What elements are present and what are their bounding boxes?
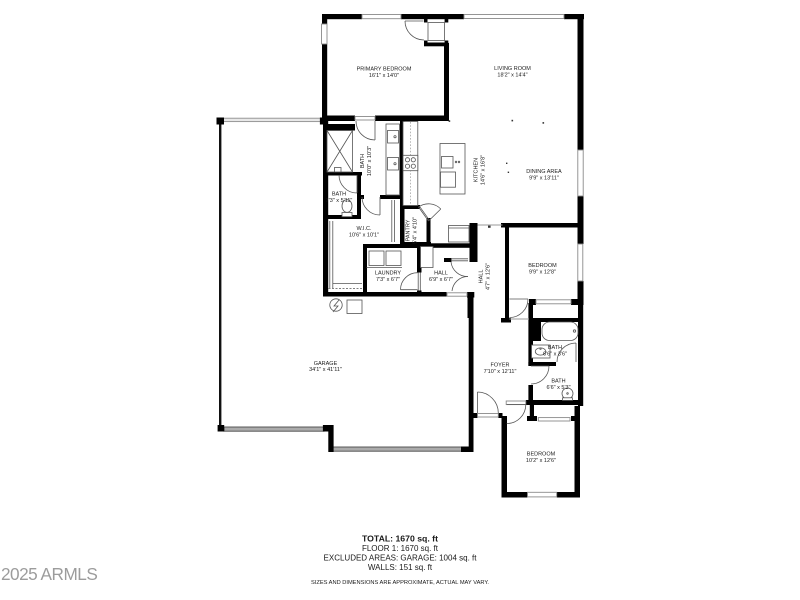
svg-text:14'6" x 16'8": 14'6" x 16'8" (481, 155, 487, 185)
svg-text:BEDROOM: BEDROOM (528, 263, 557, 269)
svg-text:10'6" x 10'1": 10'6" x 10'1" (349, 233, 379, 239)
svg-text:5'4" x 4'10": 5'4" x 4'10" (413, 217, 419, 244)
svg-text:HALL: HALL (479, 270, 485, 284)
svg-text:BATH: BATH (548, 345, 562, 351)
svg-text:PRIMARY BEDROOM: PRIMARY BEDROOM (357, 67, 412, 73)
svg-text:18'2" x 14'4": 18'2" x 14'4" (497, 73, 527, 79)
svg-text:BATH: BATH (360, 154, 366, 168)
svg-text:DINING AREA: DINING AREA (526, 169, 562, 175)
svg-text:LAUNDRY: LAUNDRY (375, 271, 402, 277)
svg-text:6'6" x 3'6": 6'6" x 3'6" (543, 352, 567, 358)
svg-text:6'6" x 5'3": 6'6" x 5'3" (546, 385, 570, 391)
svg-text:7'3" x 5'11": 7'3" x 5'11" (326, 198, 353, 204)
svg-text:TOTAL: 1670 sq. ft: TOTAL: 1670 sq. ft (362, 534, 438, 544)
svg-text:10'2" x 12'6": 10'2" x 12'6" (526, 458, 556, 464)
svg-text:FOYER: FOYER (491, 363, 510, 369)
svg-text:34'1" x 41'11": 34'1" x 41'11" (309, 367, 342, 373)
svg-text:WALLS: 151 sq. ft: WALLS: 151 sq. ft (368, 563, 433, 572)
svg-text:LIVING ROOM: LIVING ROOM (494, 66, 531, 72)
svg-text:KITCHEN: KITCHEN (474, 158, 480, 182)
svg-text:HALL: HALL (434, 271, 448, 277)
svg-text:6'9" x 6'7": 6'9" x 6'7" (429, 277, 453, 283)
svg-text:7'10" x 12'11": 7'10" x 12'11" (484, 369, 517, 375)
svg-text:9'9" x 12'8": 9'9" x 12'8" (529, 270, 556, 276)
svg-text:BEDROOM: BEDROOM (527, 452, 556, 458)
svg-text:4'7" x 12'6": 4'7" x 12'6" (486, 263, 492, 290)
svg-text:10'0" x 10'3": 10'0" x 10'3" (367, 146, 373, 176)
svg-text:SIZES AND DIMENSIONS ARE APPRO: SIZES AND DIMENSIONS ARE APPROXIMATE, AC… (311, 580, 489, 586)
svg-text:9'9" x 13'11": 9'9" x 13'11" (529, 176, 559, 182)
svg-text:W.I.C.: W.I.C. (357, 226, 372, 232)
svg-text:2025 ARMLS: 2025 ARMLS (1, 564, 97, 584)
svg-text:PANTRY: PANTRY (406, 219, 412, 241)
svg-text:7'3" x 6'7": 7'3" x 6'7" (376, 277, 400, 283)
svg-text:BATH: BATH (332, 192, 346, 198)
svg-text:FLOOR 1: 1670 sq. ft: FLOOR 1: 1670 sq. ft (362, 544, 439, 553)
svg-text:BATH: BATH (551, 379, 565, 385)
svg-text:16'1" x 14'0": 16'1" x 14'0" (369, 73, 399, 79)
svg-text:EXCLUDED AREAS: GARAGE: 1004 s: EXCLUDED AREAS: GARAGE: 1004 sq. ft (324, 553, 478, 562)
